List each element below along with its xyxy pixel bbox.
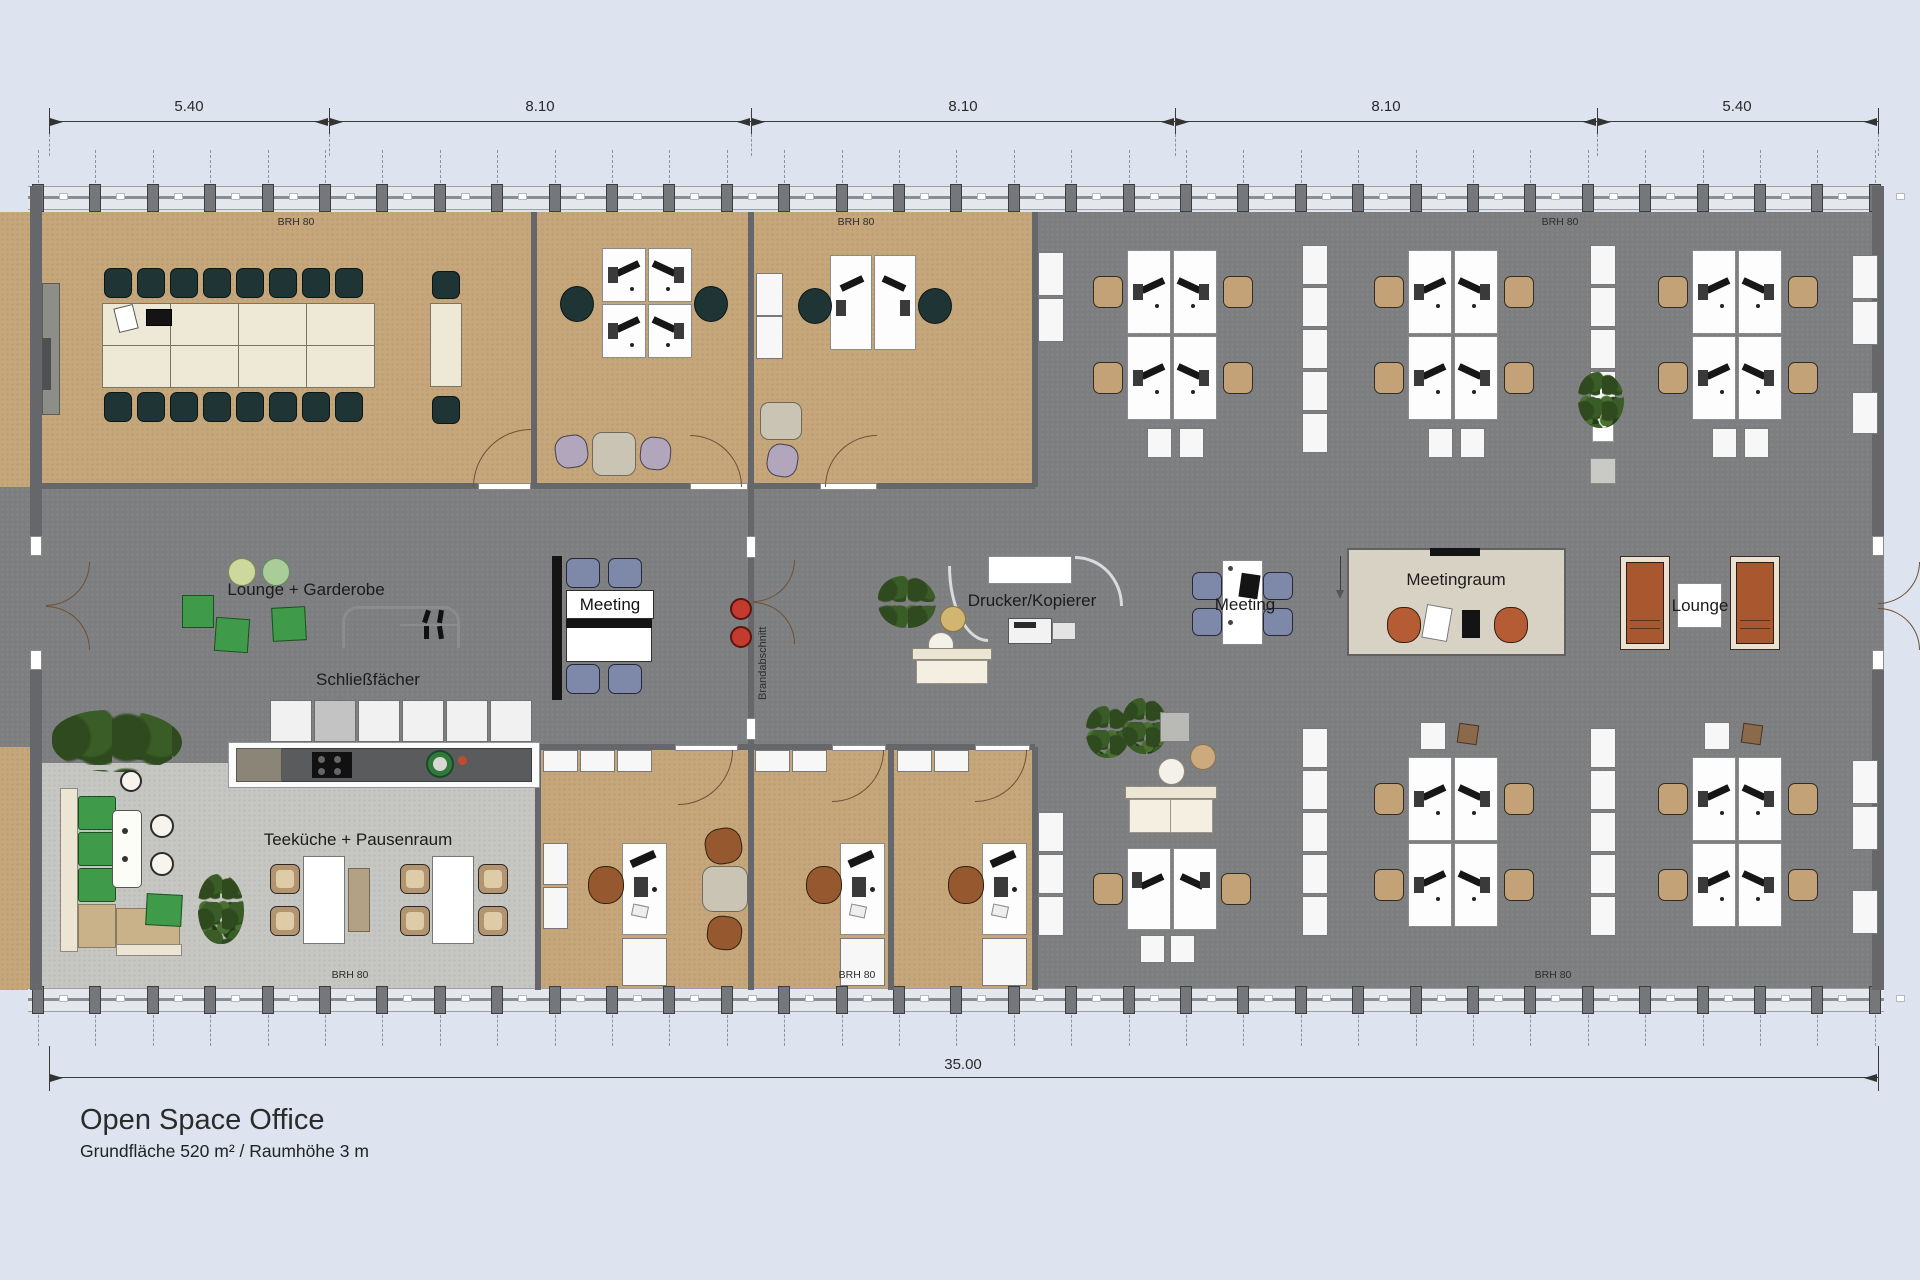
facade-axis-dash (555, 1015, 556, 1046)
facade-axis-dash (1129, 1015, 1130, 1046)
facade-axis-dash (440, 1015, 441, 1046)
facade-glazing-tick (346, 193, 355, 200)
task-chair (1374, 276, 1404, 308)
coffee-table (592, 432, 636, 476)
cooktop-burner (318, 768, 325, 775)
facade-glazing-tick (1494, 193, 1503, 200)
storage-stack (1302, 896, 1328, 936)
facade-glazing-tick (1724, 995, 1733, 1002)
red-stool (730, 626, 752, 648)
meetingraum-chair (1387, 607, 1421, 643)
desk-mouse (1155, 390, 1159, 394)
facade-axis-dash (497, 1015, 498, 1046)
facade-glazing-tick (289, 193, 298, 200)
label-lounge-right: Lounge (1672, 596, 1729, 616)
facade-axis-dash (153, 1015, 154, 1046)
dimension-arrow-right (1864, 118, 1877, 126)
facade-post-top (893, 184, 905, 212)
facade-post-top (1237, 184, 1249, 212)
desk-keyboard (634, 877, 648, 897)
task-chair (1658, 276, 1688, 308)
facade-glazing-tick (403, 193, 412, 200)
storage-stack (1590, 329, 1616, 369)
storage-stack (1852, 301, 1878, 345)
task-chair (1504, 362, 1534, 394)
label-lounge-garderobe: Lounge + Garderobe (227, 580, 384, 600)
facade-post-top (663, 184, 675, 212)
cluster-caddy (1170, 935, 1195, 963)
desk-keyboard (994, 877, 1008, 897)
facade-glazing-tick (748, 193, 757, 200)
facade-axis-dash (1416, 150, 1417, 183)
facade-post-bottom (1467, 986, 1479, 1014)
task-chair (1374, 362, 1404, 394)
facade-axis-dash (38, 1015, 39, 1046)
facade-glazing-tick (231, 995, 240, 1002)
facade-glazing-tick (748, 995, 757, 1002)
meeting2-dot (1228, 566, 1233, 571)
printer-tray (1052, 622, 1076, 640)
office-sideboard (982, 938, 1027, 986)
pause-chair (478, 864, 508, 894)
facade-post-top (1524, 184, 1536, 212)
task-chair (1374, 783, 1404, 815)
task-chair (1504, 783, 1534, 815)
conference-chair (170, 392, 198, 422)
printer-slot (1014, 622, 1036, 628)
open-cluster-bottom-1-desk (1173, 848, 1217, 930)
desk-keyboard (1764, 877, 1774, 893)
facade-glazing-tick (1781, 193, 1790, 200)
facade-post-top (1065, 184, 1077, 212)
dimension-arrow-left (1598, 118, 1611, 126)
facade-post-top (1467, 184, 1479, 212)
desk-keyboard (900, 300, 910, 316)
facade-axis-dash (1243, 1015, 1244, 1046)
facade-post-bottom (1008, 986, 1020, 1014)
page-title: Open Space Office (80, 1104, 325, 1137)
facade-post-bottom (663, 986, 675, 1014)
lounge-sofa-left (1626, 562, 1664, 644)
task-chair (1374, 869, 1404, 901)
conference-chair (236, 392, 264, 422)
facade-post-top (1582, 184, 1594, 212)
cluster-caddy (1420, 722, 1446, 750)
facade-axis-dash (1301, 150, 1302, 183)
facade-axis-dash (268, 1015, 269, 1046)
locker (314, 700, 356, 742)
desk-mouse (1436, 811, 1440, 815)
desk-mouse (1472, 811, 1476, 815)
cluster-caddy (1704, 722, 1730, 750)
facade-glazing-tick (1551, 193, 1560, 200)
pouf-green (271, 606, 307, 642)
locker (446, 700, 488, 742)
desk-mouse (666, 287, 670, 291)
lounge-sofa-right (1736, 562, 1774, 644)
desk-keyboard (1764, 791, 1774, 807)
facade-axis-dash (1817, 1015, 1818, 1046)
door-arc (1878, 608, 1920, 650)
office-cabinet-top (755, 750, 790, 772)
office-cabinet-top (617, 750, 652, 772)
corner-sofa-cushion-green (78, 868, 116, 902)
facade-glazing-tick (518, 193, 527, 200)
dimension-arrow-right (315, 118, 328, 126)
storage-stack (1590, 728, 1616, 768)
facade-axis-dash (1703, 150, 1704, 183)
facade-axis-dash (1473, 1015, 1474, 1046)
facade-glazing-tick (1092, 995, 1101, 1002)
facade-glazing-tick (231, 193, 240, 200)
facade-axis-dash (440, 150, 441, 183)
pause-chair (478, 906, 508, 936)
facade-post-bottom (1754, 986, 1766, 1014)
side-chair (432, 396, 460, 424)
facade-glazing-tick (1781, 995, 1790, 1002)
room-b-chair (694, 286, 728, 322)
facade-axis-dash (1817, 150, 1818, 183)
facade-glazing-tick (690, 995, 699, 1002)
facade-glazing-tick (805, 995, 814, 1002)
dim-top-2: 8.10 (525, 98, 554, 115)
dimension-ext-line (1175, 134, 1176, 156)
task-chair (1788, 276, 1818, 308)
facade-glazing-tick (1035, 995, 1044, 1002)
floor-plan-canvas: Lounge + Garderobe Schließfächer Meeting… (0, 0, 1920, 1280)
facade-post-bottom (204, 986, 216, 1014)
facade-glazing-tick (289, 995, 298, 1002)
facade-axis-dash (1186, 150, 1187, 183)
desk-mouse (1436, 390, 1440, 394)
sofa-line (1740, 620, 1770, 621)
office-cabinet-left (543, 843, 568, 885)
facade-axis-dash (1645, 150, 1646, 183)
facade-axis-dash (95, 150, 96, 183)
cluster-caddy (1712, 428, 1737, 458)
door-jamb (30, 536, 42, 556)
desk-mouse (1191, 304, 1195, 308)
facade-post-top (1697, 184, 1709, 212)
facade-axis-dash (899, 1015, 900, 1046)
dimension-arrow-right (1161, 118, 1174, 126)
desk-keyboard (1199, 370, 1209, 386)
label-brandabschnitt: Brandabschnitt (757, 627, 769, 700)
desk-keyboard (1480, 877, 1490, 893)
room-c-cabinet (756, 316, 783, 359)
tablet (146, 309, 172, 326)
pause-chair (270, 906, 300, 936)
dim-top-5: 5.40 (1722, 98, 1751, 115)
conference-chair (335, 392, 363, 422)
dimension-tick (1878, 108, 1879, 135)
desk-mouse (1720, 390, 1724, 394)
stool-white (120, 770, 142, 792)
facade-axis-dash (497, 150, 498, 183)
task-chair (1504, 869, 1534, 901)
task-chair (1658, 362, 1688, 394)
desk-mouse (1756, 811, 1760, 815)
office-cabinet-top (792, 750, 827, 772)
facade-post-top (1410, 184, 1422, 212)
desk-keyboard (674, 267, 684, 283)
facade-post-top (204, 184, 216, 212)
storage-stack (1302, 854, 1328, 894)
desk-keyboard (1133, 370, 1143, 386)
facade-post-bottom (1639, 986, 1651, 1014)
cluster-caddy-brown (1457, 723, 1480, 746)
desk-mouse (1756, 897, 1760, 901)
dimension-arrow-left (752, 118, 765, 126)
facade-glazing-tick (346, 995, 355, 1002)
task-chair (1504, 276, 1534, 308)
corner-sofa-cushion-green (78, 832, 116, 866)
facade-axis-dash (1014, 150, 1015, 183)
facade-post-top (836, 184, 848, 212)
dimension-line-bottom (49, 1077, 1878, 1078)
pouf-green (214, 617, 250, 653)
facade-post-bottom (376, 986, 388, 1014)
facade-glazing-tick (1150, 193, 1159, 200)
meeting-screen (552, 556, 562, 700)
facade-post-bottom (1869, 986, 1881, 1014)
facade-post-top (1295, 184, 1307, 212)
facade-glazing-tick (518, 995, 527, 1002)
facade-axis-dash (1875, 1015, 1876, 1046)
facade-post-bottom (1180, 986, 1192, 1014)
facade-glazing-tick (1437, 995, 1446, 1002)
storage-stack (1038, 812, 1064, 852)
facade-axis-dash (38, 150, 39, 183)
facade-glazing-tick (1264, 995, 1273, 1002)
conference-chair (269, 268, 297, 298)
facade-glazing-tick (1379, 995, 1388, 1002)
facade-axis-dash (612, 1015, 613, 1046)
cooktop-burner (318, 756, 325, 763)
pouf-white (1158, 758, 1185, 785)
desk-keyboard (1698, 370, 1708, 386)
facade-post-top (1180, 184, 1192, 212)
storage-stack (1590, 812, 1616, 852)
facade-post-bottom (89, 986, 101, 1014)
facade-axis-dash (1703, 1015, 1704, 1046)
storage-stack (1302, 812, 1328, 852)
corner-sofa-cushion-green (78, 796, 116, 830)
dimension-arrow-right (1583, 118, 1596, 126)
label-brh-bottom-mid: BRH 80 (839, 969, 876, 981)
storage-stack (1038, 252, 1064, 296)
interior-wall (748, 747, 754, 990)
storage-stack (1590, 245, 1616, 285)
sofa-back (912, 648, 992, 660)
task-chair (1093, 873, 1123, 905)
pause-sideboard (348, 868, 370, 932)
sofa-line (1630, 628, 1660, 629)
facade-post-top (89, 184, 101, 212)
locker (270, 700, 312, 742)
facade-axis-dash (1760, 1015, 1761, 1046)
facade-axis-dash (784, 1015, 785, 1046)
desk-keyboard (1764, 284, 1774, 300)
hedge-plant (52, 710, 182, 772)
meeting-chair (608, 558, 642, 588)
pouf-green (182, 595, 214, 628)
pause-chair (400, 864, 430, 894)
label-meeting-center: Meeting (1215, 595, 1275, 615)
facade-axis-dash (727, 1015, 728, 1046)
office-cabinet-top (897, 750, 932, 772)
desk-mouse (1436, 897, 1440, 901)
desk-keyboard (1480, 791, 1490, 807)
cluster-caddy (1744, 428, 1769, 458)
facade-axis-dash (1588, 1015, 1589, 1046)
door-jamb (30, 650, 42, 670)
desk-mouse (1756, 304, 1760, 308)
facade-glazing-tick (805, 193, 814, 200)
facade-glazing-tick (1264, 193, 1273, 200)
desk-mouse (630, 287, 634, 291)
printer-table (988, 556, 1072, 584)
desk-keyboard (1764, 370, 1774, 386)
desk-mouse (1155, 304, 1159, 308)
label-meeting-left: Meeting (566, 590, 654, 619)
dimension-ext-line (1597, 134, 1598, 156)
corner-sofa-cushion-tan (78, 904, 116, 948)
interior-wall (531, 483, 690, 489)
storage-stack (1302, 371, 1328, 411)
storage-gray (1590, 458, 1616, 484)
desk-keyboard (1414, 284, 1424, 300)
task-chair (1658, 783, 1688, 815)
facade-post-bottom (721, 986, 733, 1014)
interior-wall (30, 186, 42, 556)
facade-glazing-tick (1609, 995, 1618, 1002)
corner-sofa-back (60, 788, 78, 952)
desk-keyboard (1480, 284, 1490, 300)
facade-axis-dash (1645, 1015, 1646, 1046)
facade-post-bottom (1697, 986, 1709, 1014)
open-cluster-bottom-1-desk (1127, 848, 1171, 930)
facade-glazing-tick (1322, 193, 1331, 200)
room-b-chair (560, 286, 594, 322)
facade-post-top (606, 184, 618, 212)
office-cabinet-top (934, 750, 969, 772)
storage-stack (1302, 728, 1328, 768)
facade-post-bottom (950, 986, 962, 1014)
facade-axis-dash (956, 150, 957, 183)
storage-stack (1852, 255, 1878, 299)
label-brh-bottom-left: BRH 80 (332, 969, 369, 981)
task-chair (1093, 362, 1123, 394)
interior-wall (877, 483, 1035, 489)
meetingraum-tv (1430, 548, 1480, 556)
storage-stack (1302, 329, 1328, 369)
facade-post-top (721, 184, 733, 212)
desk-keyboard (1133, 284, 1143, 300)
facade-glazing-tick (1724, 193, 1733, 200)
facade-axis-dash (1129, 150, 1130, 183)
desk-mouse (1720, 811, 1724, 815)
conference-chair (104, 268, 132, 298)
sofa-line (1740, 628, 1770, 629)
facade-glazing-tick (1666, 995, 1675, 1002)
meeting-chair (608, 664, 642, 694)
facade-glazing-tick (1551, 995, 1560, 1002)
locker (358, 700, 400, 742)
interior-wall (748, 483, 820, 489)
conference-chair (203, 268, 231, 298)
facade-axis-dash (95, 1015, 96, 1046)
facade-glazing-tick (576, 193, 585, 200)
door-jamb (746, 536, 756, 558)
dimension-arrow-left (330, 118, 343, 126)
facade-axis-dash (268, 150, 269, 183)
conference-chair (203, 392, 231, 422)
facade-axis-dash (153, 150, 154, 183)
facade-post-top (950, 184, 962, 212)
facade-post-bottom (1352, 986, 1364, 1014)
facade-glazing-tick (863, 193, 872, 200)
facade-axis-dash (1530, 150, 1531, 183)
facade-glazing-tick (1092, 193, 1101, 200)
plant (878, 576, 936, 628)
facade-glazing-tick (1150, 995, 1159, 1002)
desk-keyboard (1200, 872, 1210, 888)
dimension-arrow-left (50, 1074, 63, 1082)
facade-post-bottom (549, 986, 561, 1014)
facade-axis-dash (382, 150, 383, 183)
coffee-table (702, 866, 748, 912)
cooktop-burner (334, 768, 341, 775)
facade-glazing-tick (1666, 193, 1675, 200)
interior-wall (1030, 744, 1035, 750)
side-table (430, 303, 462, 387)
storage-stack (1852, 890, 1878, 934)
meetingraum-arrow-line (1340, 556, 1341, 590)
facade-post-bottom (319, 986, 331, 1014)
storage-stack (1590, 287, 1616, 327)
cluster-caddy (1140, 935, 1165, 963)
facade-axis-dash (842, 1015, 843, 1046)
storage-stack (1038, 298, 1064, 342)
coat-rack-rail (400, 624, 458, 626)
facade-axis-dash (555, 150, 556, 183)
facade-axis-dash (1301, 1015, 1302, 1046)
office-cabinet-left (543, 887, 568, 929)
facade-glazing-tick (576, 995, 585, 1002)
desk-mouse (870, 887, 875, 892)
facade-glazing-tick (690, 193, 699, 200)
facade-axis-dash (1760, 150, 1761, 183)
meeting-chair (566, 558, 600, 588)
cluster-caddy (1179, 428, 1204, 458)
facade-glazing-tick (633, 193, 642, 200)
desk-keyboard (852, 877, 866, 897)
facade-post-bottom (32, 986, 44, 1014)
facade-axis-dash (210, 150, 211, 183)
sofa-back (1125, 786, 1217, 799)
task-chair (1223, 362, 1253, 394)
room-c-chair (918, 288, 952, 324)
room-c-cabinet (756, 273, 783, 316)
side-chair (432, 271, 460, 299)
desk-keyboard (608, 323, 618, 339)
red-stool (730, 598, 752, 620)
room-c-chair (798, 288, 832, 324)
conference-chair (269, 392, 297, 422)
mini-cabinet (112, 810, 142, 888)
storage-stack (1852, 392, 1878, 434)
